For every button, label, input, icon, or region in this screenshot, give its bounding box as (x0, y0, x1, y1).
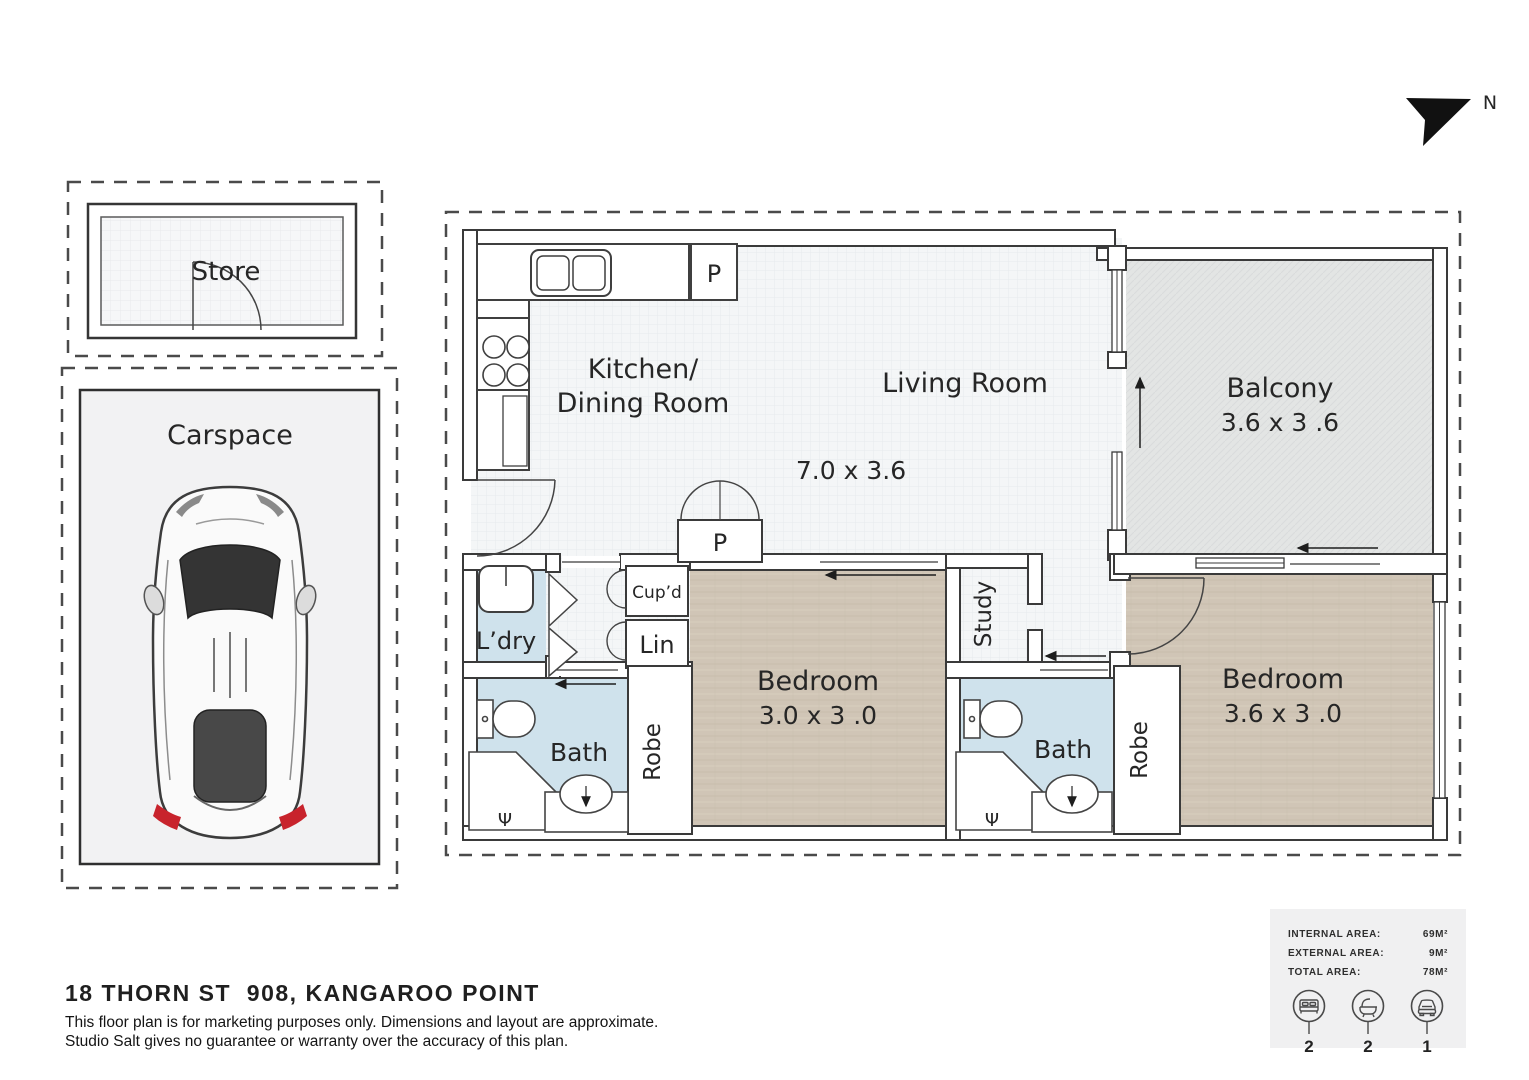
bed-icon (1290, 988, 1328, 1036)
carspace-label: Carspace (167, 420, 293, 451)
stat-label: TOTAL AREA: (1288, 963, 1361, 982)
shower-symbol: Ψ (985, 810, 999, 831)
balcony-dims: 3.6 x 3 .6 (1221, 408, 1339, 437)
car-icon (1408, 988, 1446, 1036)
bedroom2-label: Bedroom (1222, 664, 1344, 695)
pantry-hall-label: P (713, 529, 727, 557)
linen-label: Lin (639, 631, 674, 659)
bathrooms-number: 2 (1363, 1037, 1372, 1057)
carspaces-count: 1 (1408, 988, 1446, 1057)
store-unit: Store (68, 182, 382, 356)
carspaces-number: 1 (1422, 1037, 1431, 1057)
stat-row-total: TOTAL AREA: 78M² (1288, 963, 1448, 982)
stat-label: EXTERNAL AREA: (1288, 944, 1384, 963)
shower-symbol: Ψ (498, 810, 512, 831)
bath2-label: Bath (1034, 735, 1092, 764)
floorplan-page: N Store Carspace (0, 0, 1529, 1080)
stat-row-external: EXTERNAL AREA: 9M² (1288, 944, 1448, 963)
study-label: Study (971, 581, 997, 647)
bathrooms-count: 2 (1349, 988, 1387, 1057)
living-dims: 7.0 x 3.6 (796, 456, 906, 485)
stat-value: 69M² (1423, 925, 1448, 944)
stat-row-internal: INTERNAL AREA: 69M² (1288, 925, 1448, 944)
pantry-top-label: P (707, 260, 721, 288)
bath1-label: Bath (550, 738, 608, 767)
kitchen-label-line2: Dining Room (557, 388, 730, 419)
kitchen-label-line1: Kitchen/ (588, 354, 699, 385)
robe1-label: Robe (640, 723, 666, 781)
bedroom1-dims: 3.0 x 3 .0 (759, 701, 877, 730)
carspace-unit: Carspace (62, 368, 397, 888)
stat-value: 78M² (1423, 963, 1448, 982)
cupboard-label: Cup’d (632, 583, 682, 603)
bedroom1-label: Bedroom (757, 666, 879, 697)
balcony-label: Balcony (1226, 373, 1333, 404)
disclaimer-line1: This floor plan is for marketing purpose… (65, 1014, 785, 1032)
stat-value: 9M² (1429, 944, 1448, 963)
floorplan-canvas: N Store Carspace (0, 0, 1529, 905)
north-arrow-icon: N (1406, 92, 1497, 146)
store-label: Store (192, 257, 261, 287)
living-label: Living Room (882, 368, 1048, 399)
car-top-view (141, 487, 319, 838)
disclaimer-line2: Studio Salt gives no guarantee or warran… (65, 1033, 785, 1051)
property-address: 18 THORN ST 908, KANGAROO POINT (65, 980, 540, 1007)
north-label: N (1483, 92, 1497, 114)
bedrooms-number: 2 (1304, 1037, 1313, 1057)
robe2-label: Robe (1127, 721, 1153, 779)
bedroom1-floor (690, 566, 946, 830)
laundry-label: L’dry (476, 627, 536, 655)
area-summary-box: INTERNAL AREA: 69M² EXTERNAL AREA: 9M² T… (1270, 909, 1466, 1048)
feature-icons-row: 2 2 (1288, 988, 1448, 1057)
stat-label: INTERNAL AREA: (1288, 925, 1381, 944)
bedroom2-dims: 3.6 x 3 .0 (1224, 699, 1342, 728)
bath-icon (1349, 988, 1387, 1036)
main-unit-plan: Kitchen/ Dining Room Living Room 7.0 x 3… (446, 212, 1460, 855)
bedrooms-count: 2 (1290, 988, 1328, 1057)
